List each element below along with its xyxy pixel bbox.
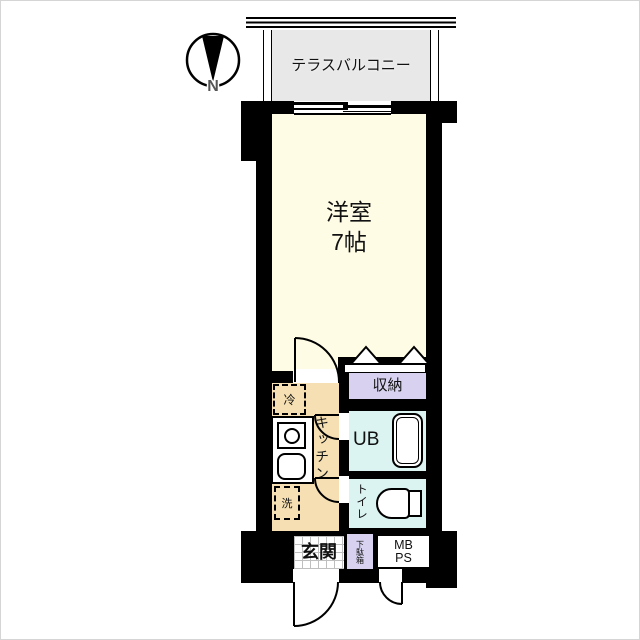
unit-bath-door-arc (315, 415, 339, 439)
door-swing-overlay (1, 1, 639, 639)
meter-box-door-arc (380, 582, 402, 604)
closet-folding-door-icon (351, 347, 381, 364)
floor-plan: N テラスバルコニー 洋室 7帖 収納 UB トイレ 冷 (0, 0, 640, 640)
main-room-door-arc (295, 338, 339, 382)
toilet-door-arc (315, 478, 339, 502)
entrance-door-arc (294, 582, 338, 626)
closet-folding-door-icon (399, 347, 429, 364)
